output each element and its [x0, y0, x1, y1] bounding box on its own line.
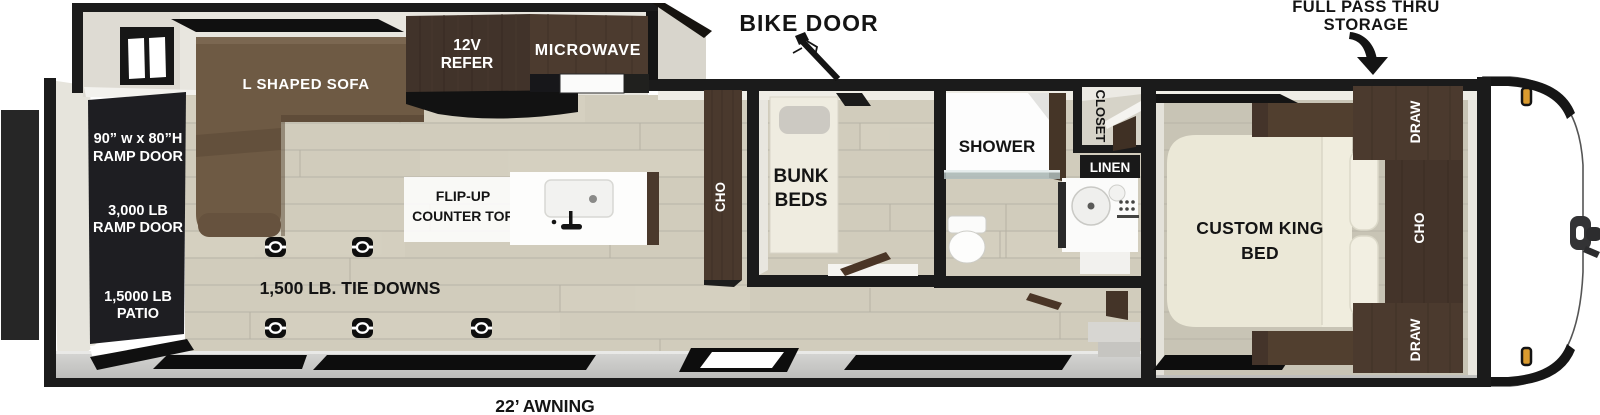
svg-text:L SHAPED SOFA: L SHAPED SOFA: [242, 76, 369, 93]
svg-text:REFER: REFER: [441, 55, 494, 72]
svg-text:22’ AWNING: 22’ AWNING: [495, 396, 595, 415]
svg-text:COUNTER TOP: COUNTER TOP: [412, 208, 514, 224]
svg-text:PATIO: PATIO: [117, 306, 159, 322]
svg-text:CHO: CHO: [713, 182, 728, 212]
svg-text:FLIP-UP: FLIP-UP: [436, 188, 490, 204]
svg-text:BUNK: BUNK: [774, 166, 829, 187]
svg-text:MICROWAVE: MICROWAVE: [535, 42, 641, 59]
svg-text:12V: 12V: [453, 37, 481, 54]
svg-text:BEDS: BEDS: [775, 190, 828, 211]
svg-text:STORAGE: STORAGE: [1324, 16, 1409, 34]
svg-text:CHO: CHO: [1411, 212, 1427, 243]
svg-text:CLOSET: CLOSET: [1093, 90, 1108, 143]
svg-text:1,5000 LB: 1,5000 LB: [104, 289, 172, 305]
svg-text:DRAW: DRAW: [1407, 318, 1423, 362]
svg-text:LINEN: LINEN: [1090, 160, 1131, 175]
svg-text:FULL PASS THRU: FULL PASS THRU: [1292, 0, 1440, 16]
svg-text:RAMP DOOR: RAMP DOOR: [93, 149, 183, 165]
svg-text:1,500 LB. TIE DOWNS: 1,500 LB. TIE DOWNS: [260, 278, 441, 298]
svg-text:BIKE DOOR: BIKE DOOR: [739, 10, 878, 36]
svg-text:SHOWER: SHOWER: [959, 137, 1036, 156]
svg-text:BED: BED: [1241, 243, 1279, 263]
svg-text:3,000 LB: 3,000 LB: [108, 203, 168, 219]
svg-text:90” w x 80”H: 90” w x 80”H: [94, 131, 183, 147]
svg-text:DRAW: DRAW: [1407, 100, 1423, 144]
svg-text:CUSTOM KING: CUSTOM KING: [1196, 218, 1323, 238]
svg-text:RAMP DOOR: RAMP DOOR: [93, 220, 183, 236]
